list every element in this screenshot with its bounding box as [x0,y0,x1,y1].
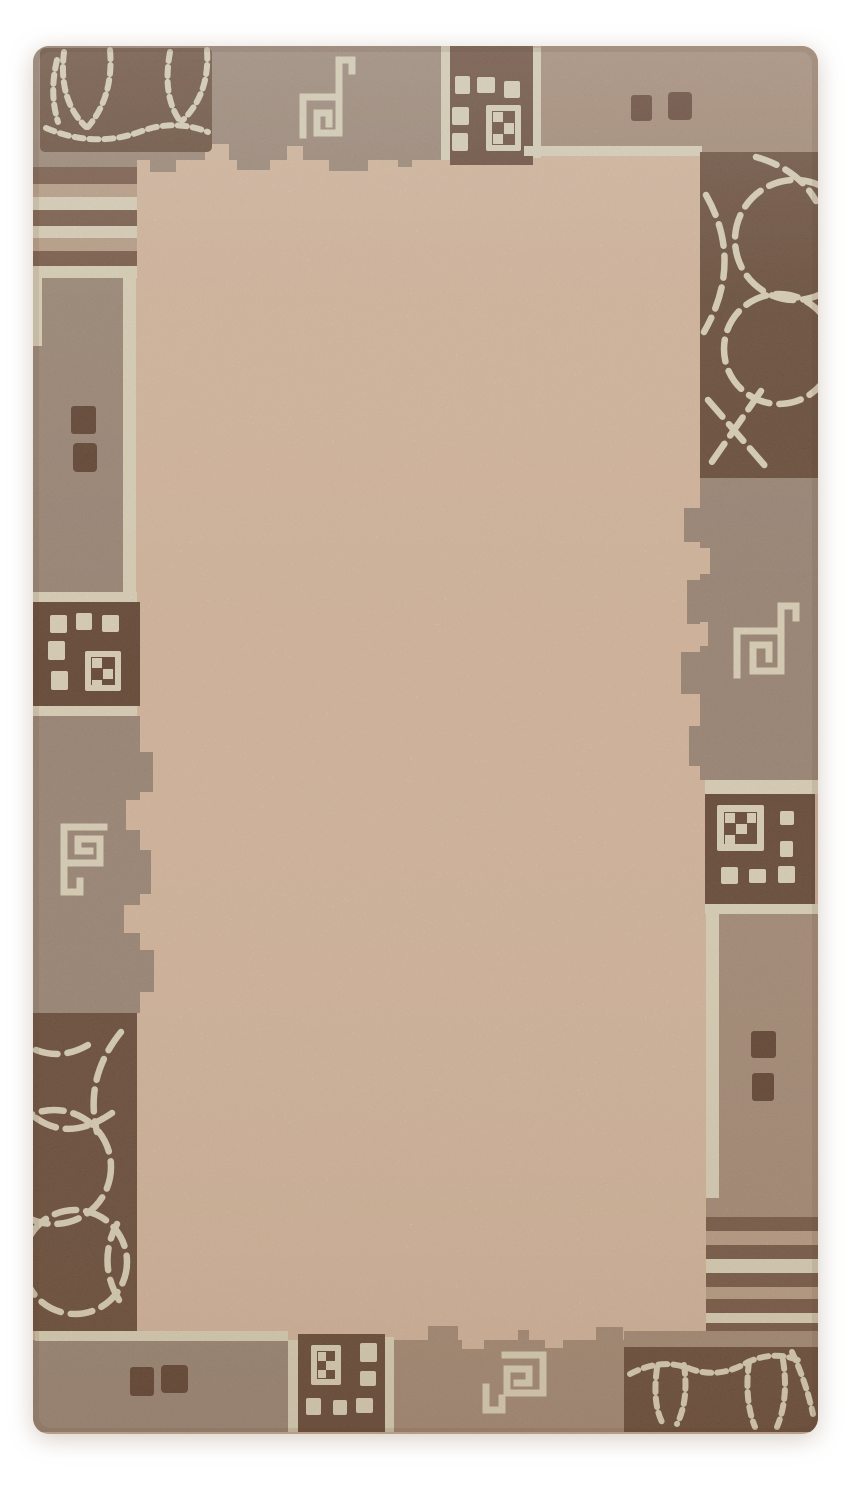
rug-product-photo [0,0,848,1500]
texture-overlay [33,46,818,1434]
rug-illustration [0,0,848,1500]
